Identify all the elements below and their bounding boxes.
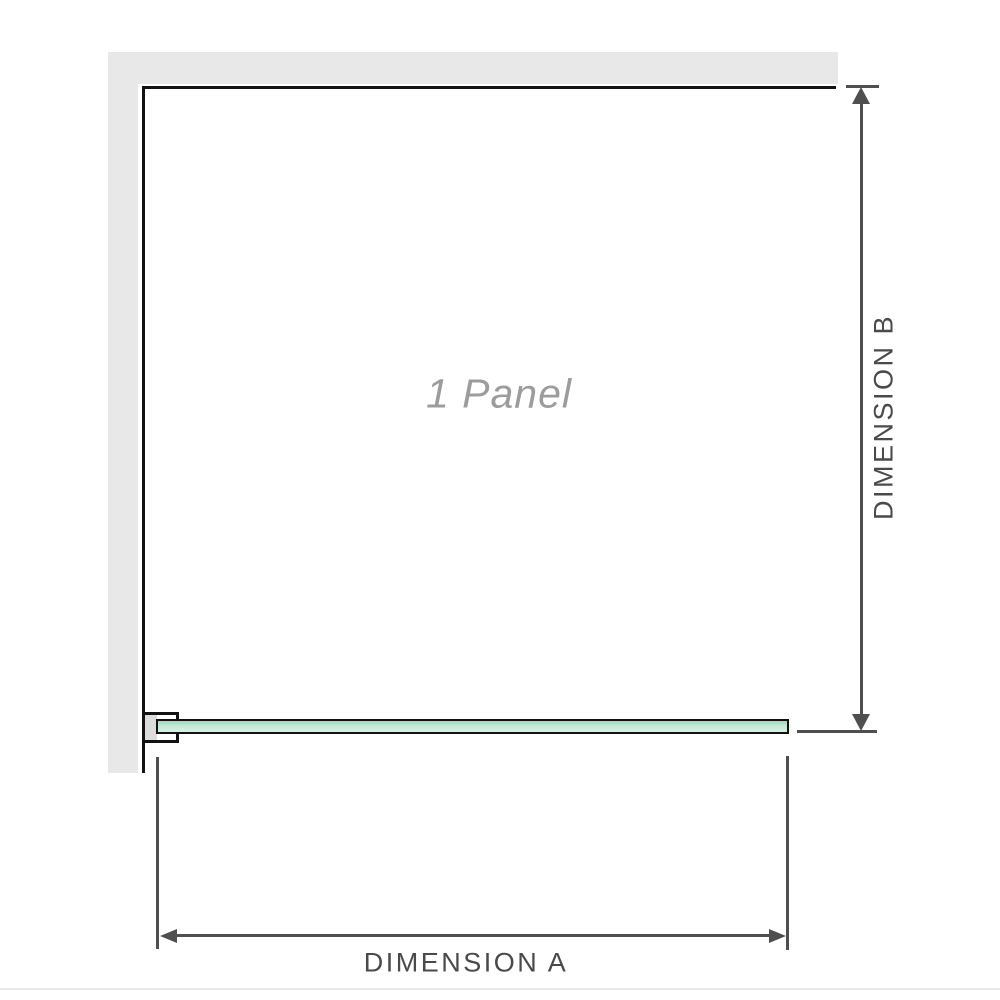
dimension-a-extension-right xyxy=(786,756,789,950)
panel-count-label: 1 Panel xyxy=(426,371,572,418)
wall-top xyxy=(108,52,838,84)
arrow-right-icon xyxy=(769,929,786,943)
arrow-down-icon xyxy=(852,714,870,731)
dimension-b-line xyxy=(860,98,863,718)
wall-left xyxy=(108,52,138,773)
panel-outline-top xyxy=(142,86,836,89)
dimension-a-label: DIMENSION A xyxy=(364,948,569,979)
image-bottom-edge xyxy=(0,988,1000,990)
shower-panel-diagram: 1 Panel DIMENSION B DIMENSION A xyxy=(0,0,1000,1000)
dimension-a-line xyxy=(165,934,781,937)
dimension-b-label: DIMENSION B xyxy=(869,314,900,520)
dimension-a-extension-left xyxy=(156,757,159,949)
glass-panel xyxy=(156,719,789,734)
arrow-up-icon xyxy=(852,87,870,104)
arrow-left-icon xyxy=(160,929,177,943)
panel-outline-left xyxy=(142,86,145,773)
